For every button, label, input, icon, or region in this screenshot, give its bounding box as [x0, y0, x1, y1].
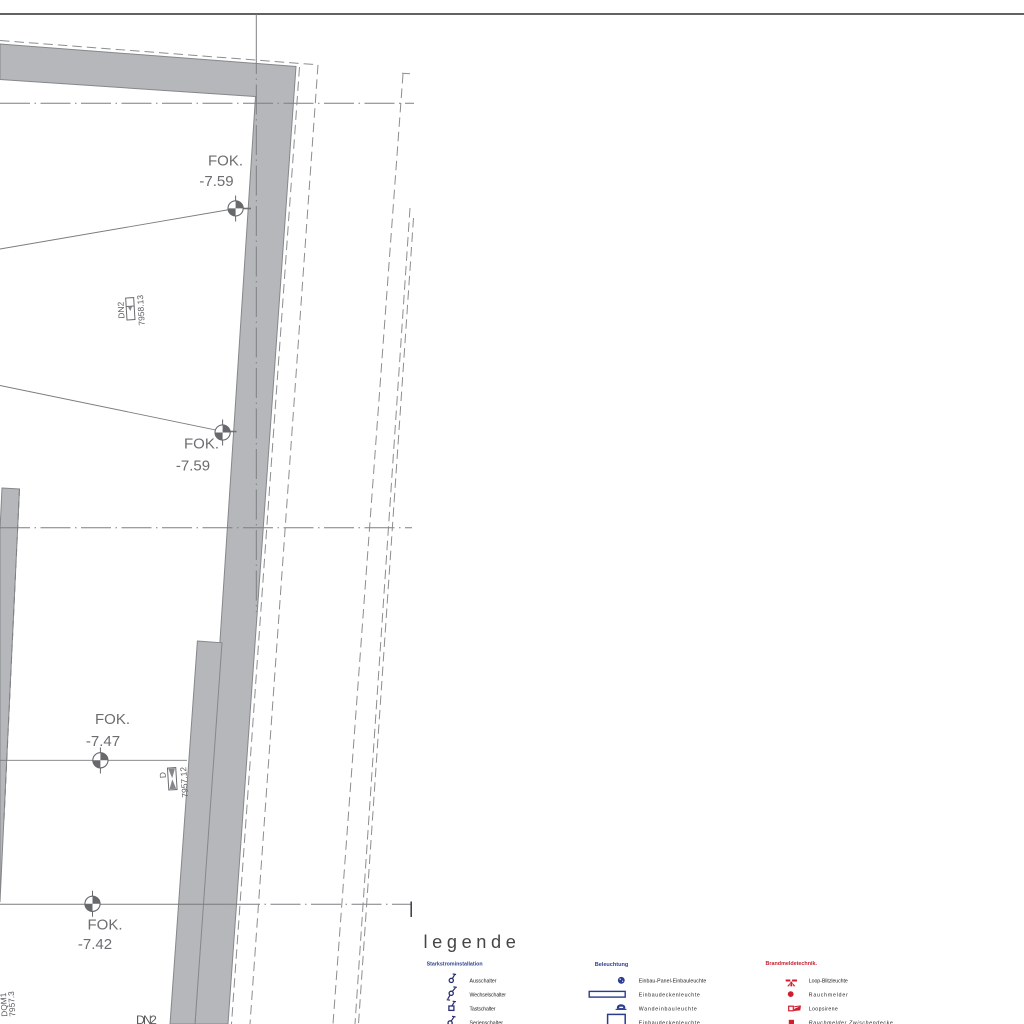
svg-text:Rauchmelder: Rauchmelder: [809, 992, 848, 998]
svg-text:DN2: DN2: [136, 1013, 157, 1024]
svg-text:FOK.: FOK.: [95, 711, 130, 728]
svg-text:-7.42: -7.42: [78, 936, 112, 953]
svg-text:7958.13: 7958.13: [135, 294, 147, 326]
svg-text:Einbau-Panel-Einbauleuchte: Einbau-Panel-Einbauleuchte: [639, 978, 707, 984]
svg-text:Tastschalter: Tastschalter: [470, 1007, 496, 1013]
svg-text:Loopsirene: Loopsirene: [809, 1007, 838, 1013]
svg-text:7957.12: 7957.12: [178, 766, 190, 798]
svg-text:FOK.: FOK.: [208, 153, 243, 170]
svg-text:FOK.: FOK.: [87, 917, 122, 934]
svg-text:Beleuchtung: Beleuchtung: [595, 962, 629, 968]
svg-text:FOK.: FOK.: [184, 436, 219, 453]
svg-text:-7.47: -7.47: [86, 733, 120, 750]
svg-text:Loop-Blitzleuchte: Loop-Blitzleuchte: [809, 978, 848, 984]
svg-text:DN2: DN2: [115, 301, 126, 319]
svg-text:Brandmeldetechnik.: Brandmeldetechnik.: [766, 961, 818, 967]
svg-text:-7.59: -7.59: [199, 173, 233, 190]
svg-text:Einbaudeckenleuchte: Einbaudeckenleuchte: [639, 992, 700, 998]
svg-text:7957.3: 7957.3: [6, 991, 18, 1017]
svg-text:-7.59: -7.59: [176, 458, 210, 475]
svg-text:legende: legende: [424, 932, 521, 952]
svg-text:Wechselschalter: Wechselschalter: [470, 993, 507, 999]
svg-text:Starkstrominstallation: Starkstrominstallation: [427, 961, 484, 967]
svg-text:D: D: [158, 772, 168, 779]
svg-text:Wandeinbauleuchte: Wandeinbauleuchte: [639, 1007, 697, 1013]
svg-text:Ausschalter: Ausschalter: [470, 978, 497, 984]
